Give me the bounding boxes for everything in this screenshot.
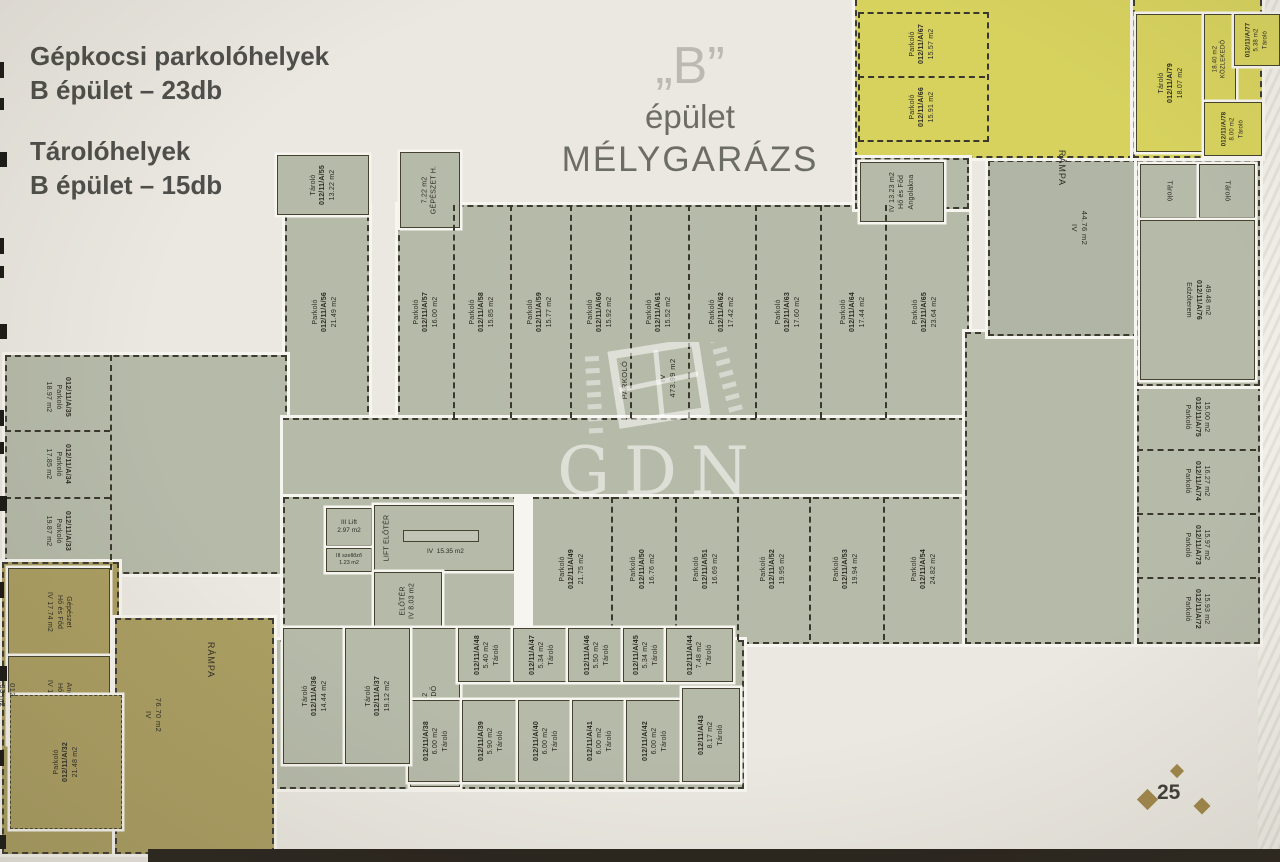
header-storage-count: Tárolóhelyek B épület – 15db	[30, 135, 222, 203]
diamond-ornament-left	[1137, 789, 1158, 810]
storage-area: 7.48 m2	[696, 642, 703, 669]
parking-stall: 15.97 m2012/11/A/73Parkoló	[1137, 513, 1256, 579]
storage-id: 012/11/A/40	[533, 721, 540, 761]
stall-type: Parkoló	[708, 299, 715, 324]
stall-id: 012/11/A/60	[596, 292, 603, 332]
parking-stall: Parkoló012/11/A/4921.75 m2	[533, 497, 613, 640]
room-area: 7.22 m2	[422, 177, 429, 204]
room-type: Tároló	[310, 174, 317, 195]
storage-unit: 012/11/A/475.34 m2Tároló	[513, 628, 570, 682]
right-arm-floor	[965, 332, 1141, 644]
stall-area: 15.77 m2	[546, 296, 553, 327]
title-garage-word: MÉLYGARÁZS	[505, 140, 875, 180]
stall-type: Parkoló	[693, 556, 700, 581]
stall-type: Parkoló	[839, 299, 846, 324]
binding-hole-mark	[0, 582, 4, 598]
lift-area: 2.97 m2	[337, 527, 361, 535]
stall-type: Parkoló	[54, 384, 61, 409]
parking-stall-yellow: Parkoló012/11/A/6615.91 m2	[858, 76, 985, 138]
storage-type: Tároló	[302, 685, 309, 706]
storage-area: 6.00 m2	[651, 728, 658, 755]
storage-area: 5.34 m2	[642, 642, 649, 669]
stall-id: 012/11/A/50	[639, 549, 646, 589]
storage-id: 012/11/A/48	[473, 635, 480, 675]
stall-id: 012/11/A/34	[63, 444, 70, 484]
ramp-right-region	[988, 160, 1139, 336]
stall-type: Parkoló	[54, 518, 61, 543]
stall-id: 012/11/A/57	[422, 292, 429, 332]
stall-area: 19.87 m2	[44, 516, 51, 547]
szellozo-area: 1.23 m2	[339, 560, 359, 567]
stall-type: Parkoló	[53, 749, 60, 774]
scanned-floorplan-page: Gépkocsi parkolóhelyek B épület – 23db T…	[0, 0, 1280, 862]
stall-type: Parkoló	[912, 299, 919, 324]
room-name-line1: Hő és Főd	[898, 175, 905, 209]
header-parking-count: Gépkocsi parkolóhelyek B épület – 23db	[30, 40, 329, 108]
stall-type: Parkoló	[833, 556, 840, 581]
stall-area: 19.95 m2	[779, 553, 786, 584]
stall-type: Parkoló	[1183, 468, 1190, 493]
storage-id: 012/11/A/38	[423, 721, 430, 761]
room-id: 012/11/A/55	[319, 165, 326, 205]
binding-hole-mark	[0, 496, 7, 511]
stall-id: 012/11/A/61	[655, 292, 662, 332]
title-building-letter: „B”	[505, 40, 875, 92]
binding-hole-mark	[0, 835, 6, 849]
storage-unit: 012/11/A/395.90 m2Tároló	[462, 700, 520, 782]
storage-id: 012/11/A/44	[686, 635, 693, 675]
center-drive-floor	[283, 418, 965, 504]
parking-stall: 16.27 m2012/11/A/74Parkoló	[1137, 449, 1256, 515]
stall-type: Parkoló	[774, 299, 781, 324]
parking-stall: Parkoló012/11/A/5424.82 m2	[883, 497, 965, 640]
storage-unit: 012/11/A/438.17 m2Tároló	[682, 688, 740, 782]
stall-id: 012/11/A/72	[1193, 589, 1200, 629]
storage-id: 012/11/A/41	[587, 721, 594, 761]
storage-type: Tároló	[492, 644, 499, 665]
stall-area: 15.93 m2	[1202, 593, 1209, 624]
ramp-right-area: 44.76 m2IV	[1028, 211, 1088, 245]
stall-id: 012/11/A/32	[62, 742, 69, 782]
stall-type: Parkoló	[911, 556, 918, 581]
parking-stall: 15.00 m2012/11/A/75Parkoló	[1137, 385, 1256, 451]
parking-stall: Parkoló012/11/A/5621.49 m2	[285, 205, 365, 418]
room-szellozo: III szellőző 1.23 m2	[326, 548, 372, 572]
storage-id: 012/11/A/43	[698, 715, 705, 755]
page-number: 25	[1157, 781, 1180, 805]
storage-type: Tároló	[364, 685, 371, 706]
storage-type: Tároló	[442, 730, 449, 751]
parking-stall: Parkoló012/11/A/5219.95 m2	[737, 497, 811, 640]
storage-type: Tároló	[602, 644, 609, 665]
stall-area: 24.82 m2	[930, 553, 937, 584]
stall-id: 012/11/A/54	[920, 549, 927, 589]
stall-area: 16.69 m2	[712, 553, 719, 584]
stall-id: 012/11/A/73	[1193, 525, 1200, 565]
stall-type: Parkoló	[760, 556, 767, 581]
storage-type: Tároló	[651, 644, 658, 665]
storage-type: Tároló	[717, 724, 724, 745]
title-building-word: épület	[505, 98, 875, 136]
binding-hole-mark	[0, 62, 4, 78]
storage-unit: 012/11/A/485.40 m2Tároló	[458, 628, 515, 682]
stall-id: 012/11/A/35	[63, 377, 70, 417]
room-lift-eloter: LIFT ELŐTÉR IV 15.35 m2	[374, 505, 514, 571]
room-yellow-storage-2: 012/11/A/788.00 m2Tároló	[1204, 102, 1262, 156]
stall-id: 012/11/A/33	[63, 511, 70, 551]
room-eloter: ELŐTÉRIV 8.03 m2	[374, 572, 442, 630]
stall-area: 15.52 m2	[665, 296, 672, 327]
binding-hole-mark	[0, 266, 4, 278]
binding-hole-mark	[0, 238, 4, 254]
room-name: LIFT ELŐTÉR	[383, 515, 390, 561]
stall-type: Parkoló	[1183, 532, 1190, 557]
stall-area: 18.97 m2	[44, 381, 51, 412]
room-name: ELŐTÉR	[400, 586, 407, 615]
stall-area: 21.49 m2	[331, 296, 338, 327]
storage-id: 012/11/A/39	[478, 721, 485, 761]
storage-area: 8.17 m2	[707, 722, 714, 749]
parking-stall: 012/11/A/33Parkoló19.87 m2	[5, 497, 110, 565]
parking-stall: Parkoló012/11/A/6417.44 m2	[820, 205, 887, 418]
stall-area: 16.76 m2	[649, 553, 656, 584]
storage-type: Tároló	[606, 730, 613, 751]
stall-id: 012/11/A/75	[1193, 397, 1200, 437]
storage-id: 012/11/A/47	[528, 635, 535, 675]
stall-area: 16.00 m2	[431, 296, 438, 327]
stall-area: 17.60 m2	[793, 296, 800, 327]
stall-type: Parkoló	[1183, 404, 1190, 429]
storage-unit: 012/11/A/447.48 m2Tároló	[666, 628, 733, 682]
stall-id: 012/11/A/67	[918, 24, 925, 64]
storage-type: Tároló	[497, 730, 504, 751]
storage-type: Tároló	[547, 644, 554, 665]
stall-id: 012/11/A/51	[702, 549, 709, 589]
stall-id: 012/11/A/59	[536, 292, 543, 332]
stall-type: Parkoló	[1183, 596, 1190, 621]
stall-id: 012/11/A/52	[769, 549, 776, 589]
storage-id: 012/11/A/45	[632, 635, 639, 675]
stall-type: Parkoló	[54, 451, 61, 476]
binding-hole-mark	[0, 666, 7, 681]
parking-stall: Parkoló012/11/A/5716.00 m2	[398, 205, 455, 418]
storage-type: Tároló	[661, 730, 668, 751]
storage-unit: 012/11/A/465.50 m2Tároló	[568, 628, 625, 682]
stall-id: 012/11/A/74	[1193, 461, 1200, 501]
storage-id: 012/11/A/37	[374, 676, 381, 716]
header-line1: Gépkocsi parkolóhelyek	[30, 40, 329, 74]
stall-area: 17.42 m2	[727, 296, 734, 327]
stall-type: Parkoló	[559, 556, 566, 581]
binding-hole-mark	[0, 152, 7, 167]
stall-id: 012/11/A/58	[478, 292, 485, 332]
parking-stall: Parkoló012/11/A/5915.77 m2	[510, 205, 572, 418]
stall-type: Parkoló	[412, 299, 419, 324]
binding-hole-mark	[0, 442, 4, 454]
storage-unit: 012/11/A/455.34 m2Tároló	[623, 628, 668, 682]
page-title: „B” épület MÉLYGARÁZS	[505, 40, 875, 180]
bottom-dark-strip	[148, 849, 1280, 862]
parking-stall: Parkoló012/11/A/5319.94 m2	[809, 497, 885, 640]
stall-type: Parkoló	[630, 556, 637, 581]
parking-stall: 012/11/A/34Parkoló17.85 m2	[5, 430, 110, 499]
room-gym-storage-2: Tároló	[1199, 164, 1255, 218]
ramp-left-area: 76.70 m2IV	[102, 698, 162, 732]
parking-stall: Parkoló012/11/A/5016.76 m2	[611, 497, 677, 640]
lift-pit-outline	[403, 530, 479, 542]
binding-hole-mark	[0, 410, 4, 426]
storage-unit: 012/11/A/426.00 m2Tároló	[626, 700, 684, 782]
ramp-left-name: RÁMPA	[155, 645, 215, 675]
stall-area: 21.48 m2	[72, 747, 79, 778]
storage-area: 14.44 m2	[321, 681, 328, 712]
header-line4: B épület – 15db	[30, 169, 222, 203]
storage-area: 5.90 m2	[487, 728, 494, 755]
room-id: 012/11/A/76	[1194, 280, 1201, 320]
stall-area: 17.85 m2	[44, 448, 51, 479]
stall-area: 15.00 m2	[1202, 402, 1209, 433]
main-parking-area: IV473.99 m2	[659, 361, 729, 395]
diamond-ornament-top	[1170, 764, 1184, 778]
stall-id: 012/11/A/65	[921, 292, 928, 332]
room-lift: III Lift 2.97 m2	[326, 508, 372, 546]
storage-area: 6.00 m2	[432, 728, 439, 755]
stall-area: 16.27 m2	[1202, 466, 1209, 497]
storage-unit: 012/11/A/386.00 m2Tároló	[408, 700, 464, 782]
room-gym-storage-1: Tároló	[1140, 164, 1198, 218]
binding-hole-mark	[0, 324, 7, 339]
binding-hole-mark	[0, 98, 4, 110]
storage-area: 5.50 m2	[593, 642, 600, 669]
storage-type: Tároló	[705, 644, 712, 665]
storage-id: 012/11/A/46	[583, 635, 590, 675]
parking-stall: Parkoló012/11/A/6317.60 m2	[755, 205, 822, 418]
room-yellow-storage-big: Tároló012/11/A/7918.07 m2	[1136, 14, 1206, 152]
storage-unit-large: Tároló012/11/A/3719.12 m2	[345, 628, 410, 764]
stall-type: Parkoló	[587, 299, 594, 324]
stall-area: 15.85 m2	[487, 296, 494, 327]
diamond-ornament-right	[1194, 798, 1211, 815]
stall-type: Parkoló	[908, 94, 915, 119]
stall-id: 012/11/A/63	[784, 292, 791, 332]
room-name: Edzőterem	[1184, 282, 1191, 318]
room-yellow-kozlekedo: 18.40 m2KÖZLEKEDŐ	[1204, 14, 1236, 104]
stall-id: 012/11/A/49	[568, 549, 575, 589]
room-area: 13.22 m2	[329, 170, 336, 201]
stall-area: 19.94 m2	[852, 553, 859, 584]
parking-stall: 012/11/A/35Parkoló18.97 m2	[5, 363, 110, 432]
storage-unit: 012/11/A/406.00 m2Tároló	[518, 700, 574, 782]
storage-unit: 012/11/A/416.00 m2Tároló	[572, 700, 628, 782]
stall-area: 15.92 m2	[606, 296, 613, 327]
storage-id: 012/11/A/42	[642, 721, 649, 761]
room-edzoterem: 49.48 m2012/11/A/76Edzőterem	[1140, 220, 1255, 380]
room-ho-gepeszet: GépészetHő és FődIV 17.74 m2	[8, 568, 110, 656]
ramp-right-name: RÁMPA	[1006, 153, 1066, 183]
left-column-front-line	[110, 355, 112, 570]
stall-area: 15.97 m2	[1202, 530, 1209, 561]
stall-id: 012/11/A/62	[718, 292, 725, 332]
stall-id: 012/11/A/56	[321, 292, 328, 332]
parking-stall: 15.93 m2012/11/A/72Parkoló	[1137, 577, 1256, 640]
storage-unit-large: Tároló012/11/A/3614.44 m2	[283, 628, 347, 764]
stall-area: 21.75 m2	[578, 553, 585, 584]
header-line2: B épület – 23db	[30, 74, 329, 108]
stall-area: 23.64 m2	[931, 296, 938, 327]
room-name-line2: Gépészet	[65, 596, 72, 628]
stall-id: 012/11/A/64	[849, 292, 856, 332]
storage-area: 19.12 m2	[383, 681, 390, 712]
stall-id: 012/11/A/53	[842, 549, 849, 589]
stall-area: 15.91 m2	[927, 92, 934, 123]
stall-area: 15.57 m2	[927, 29, 934, 60]
parking-stall: Parkoló012/11/A/5815.85 m2	[453, 205, 512, 418]
room-yellow-storage-1: 012/11/A/775.38 m2Tároló	[1234, 14, 1280, 66]
header-line3: Tárolóhelyek	[30, 135, 222, 169]
storage-area: 5.34 m2	[538, 642, 545, 669]
parking-stall: Parkoló012/11/A/6523.64 m2	[885, 205, 965, 418]
parking-stall: Parkoló012/11/A/5116.69 m2	[675, 497, 739, 640]
binding-hole-mark	[0, 750, 4, 766]
room-floor-area: IV 8.03 m2	[409, 583, 416, 619]
wall-gap-lift	[514, 497, 533, 640]
storage-area: 6.00 m2	[596, 728, 603, 755]
storage-area: 5.40 m2	[483, 642, 490, 669]
stall-area: 17.44 m2	[858, 296, 865, 327]
parking-stall-yellow: Parkoló012/11/A/6715.57 m2	[858, 12, 985, 78]
storage-id: 012/11/A/36	[311, 676, 318, 716]
room-area: 49.48 m2	[1203, 285, 1210, 316]
storage-area: 6.00 m2	[542, 728, 549, 755]
stall-type: Parkoló	[646, 299, 653, 324]
storage-type: Tároló	[552, 730, 559, 751]
room-name-line1: Hő és Főd	[55, 595, 62, 629]
room-floor-area: IV 17.74 m2	[46, 592, 53, 632]
stall-type: Parkoló	[312, 299, 319, 324]
stall-type: Parkoló	[468, 299, 475, 324]
stall-type: Parkoló	[527, 299, 534, 324]
stall-type: Parkoló	[908, 31, 915, 56]
stall-id: 012/11/A/66	[918, 87, 925, 127]
